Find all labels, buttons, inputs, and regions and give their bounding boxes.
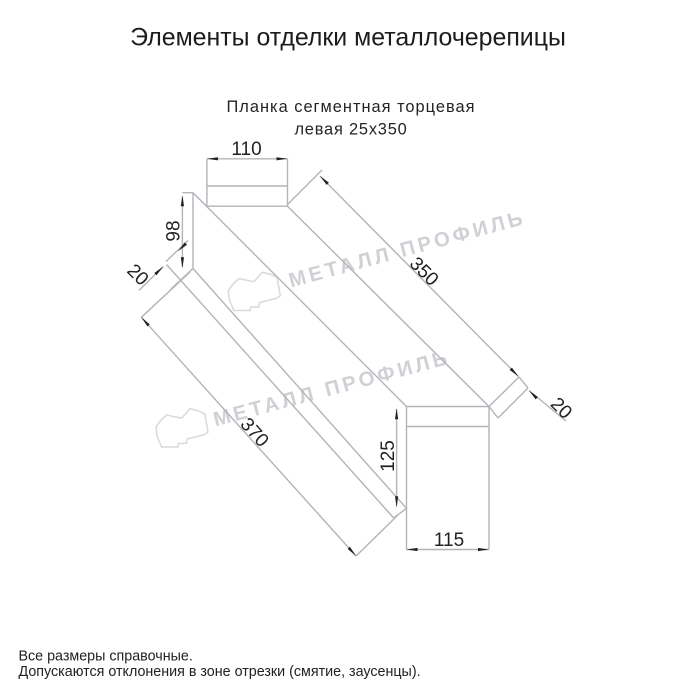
svg-text:МЕТАЛЛ ПРОФИЛЬ: МЕТАЛЛ ПРОФИЛЬ <box>286 206 528 292</box>
svg-text:Допускаются отклонения в зоне: Допускаются отклонения в зоне отрезки (с… <box>19 664 421 680</box>
svg-text:Элементы отделки металлочерепи: Элементы отделки металлочерепицы <box>130 24 566 52</box>
svg-text:115: 115 <box>434 530 464 551</box>
svg-text:левая 25х350: левая 25х350 <box>294 121 407 139</box>
svg-text:98: 98 <box>164 220 185 241</box>
svg-text:Все размеры справочные.: Все размеры справочные. <box>19 649 193 665</box>
svg-text:20: 20 <box>122 260 152 290</box>
svg-text:20: 20 <box>546 394 576 424</box>
svg-text:Планка сегментная торцевая: Планка сегментная торцевая <box>227 98 476 116</box>
svg-text:110: 110 <box>231 139 261 160</box>
svg-text:125: 125 <box>378 440 399 472</box>
